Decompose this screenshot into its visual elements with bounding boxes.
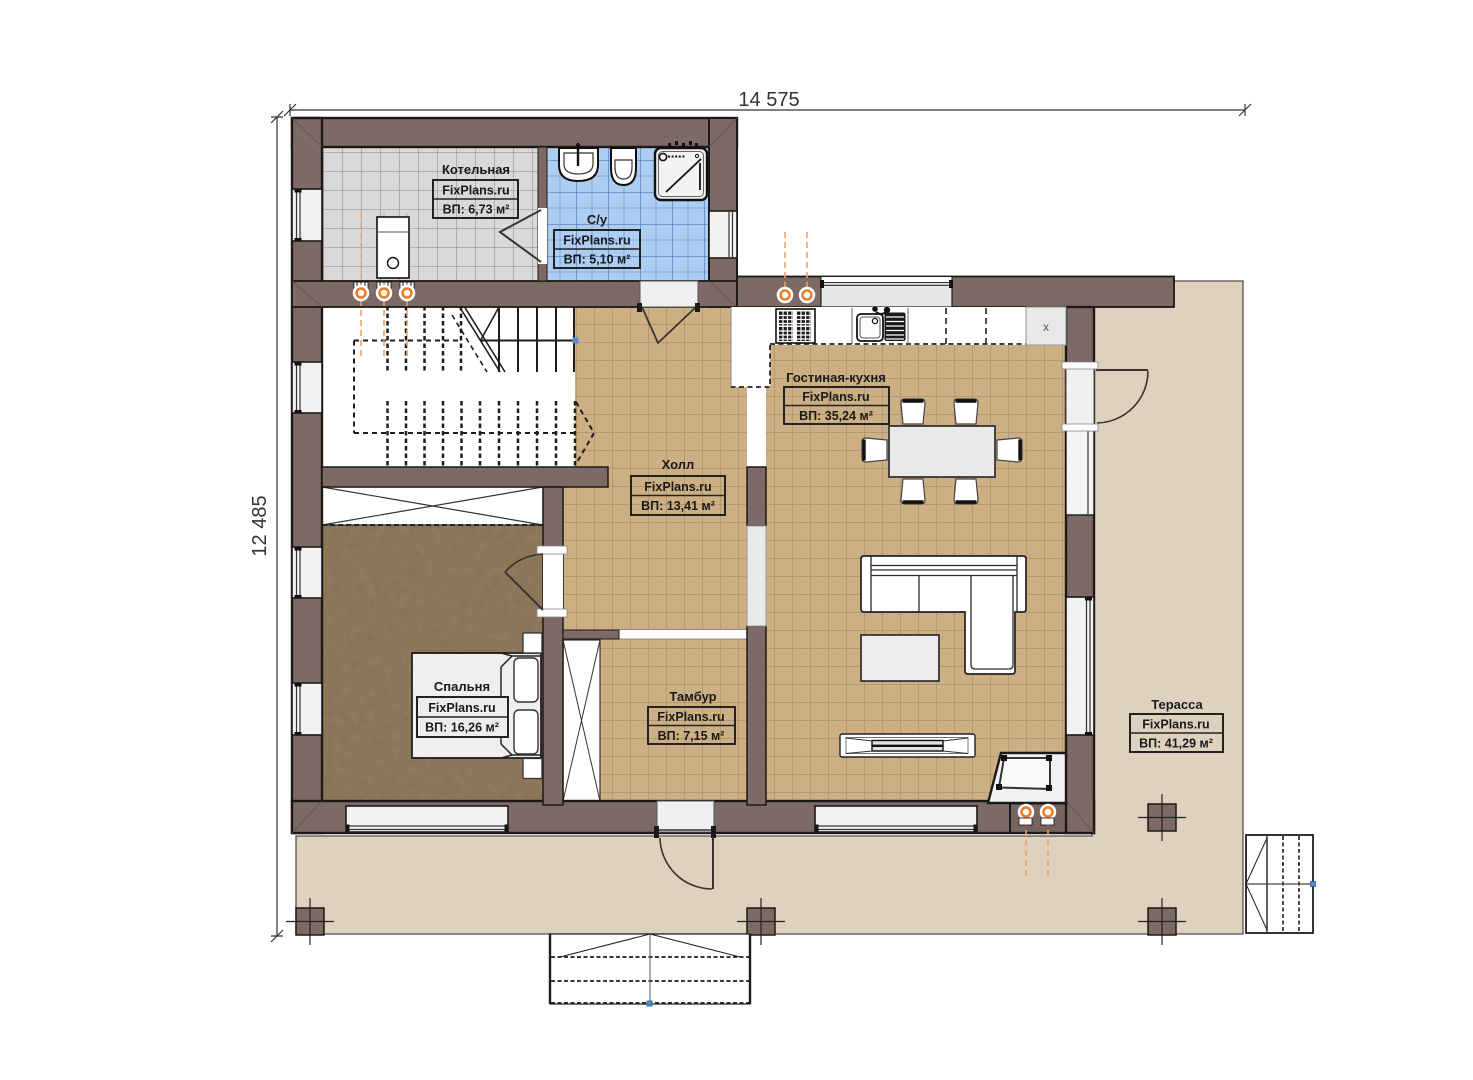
svg-text:FixPlans.ru: FixPlans.ru — [657, 710, 724, 724]
svg-text:ВП: 6,73 м²: ВП: 6,73 м² — [443, 203, 510, 217]
svg-text:ВП: 13,41 м²: ВП: 13,41 м² — [641, 499, 715, 513]
svg-text:ВП: 5,10 м²: ВП: 5,10 м² — [564, 253, 631, 267]
svg-text:ВП: 7,15 м²: ВП: 7,15 м² — [658, 729, 725, 743]
svg-text:ВП: 41,29 м²: ВП: 41,29 м² — [1139, 737, 1213, 751]
svg-text:Холл: Холл — [662, 457, 695, 472]
svg-text:FixPlans.ru: FixPlans.ru — [442, 184, 509, 198]
svg-text:FixPlans.ru: FixPlans.ru — [1142, 718, 1209, 732]
svg-text:12 485: 12 485 — [249, 495, 271, 556]
svg-text:Спальня: Спальня — [434, 679, 490, 694]
svg-text:FixPlans.ru: FixPlans.ru — [644, 480, 711, 494]
svg-text:ВП: 16,26 м²: ВП: 16,26 м² — [425, 721, 499, 735]
svg-text:FixPlans.ru: FixPlans.ru — [563, 234, 630, 248]
svg-text:С/у: С/у — [587, 212, 608, 227]
svg-text:FixPlans.ru: FixPlans.ru — [802, 390, 869, 404]
svg-text:FixPlans.ru: FixPlans.ru — [428, 701, 495, 715]
svg-text:x: x — [1043, 320, 1049, 334]
svg-text:Тамбур: Тамбур — [669, 689, 716, 704]
svg-text:Гостиная-кухня: Гостиная-кухня — [786, 370, 886, 385]
svg-text:Терасса: Терасса — [1151, 697, 1203, 712]
svg-text:ВП: 35,24 м²: ВП: 35,24 м² — [799, 409, 873, 423]
svg-text:14 575: 14 575 — [738, 89, 799, 111]
svg-text:Котельная: Котельная — [442, 162, 510, 177]
